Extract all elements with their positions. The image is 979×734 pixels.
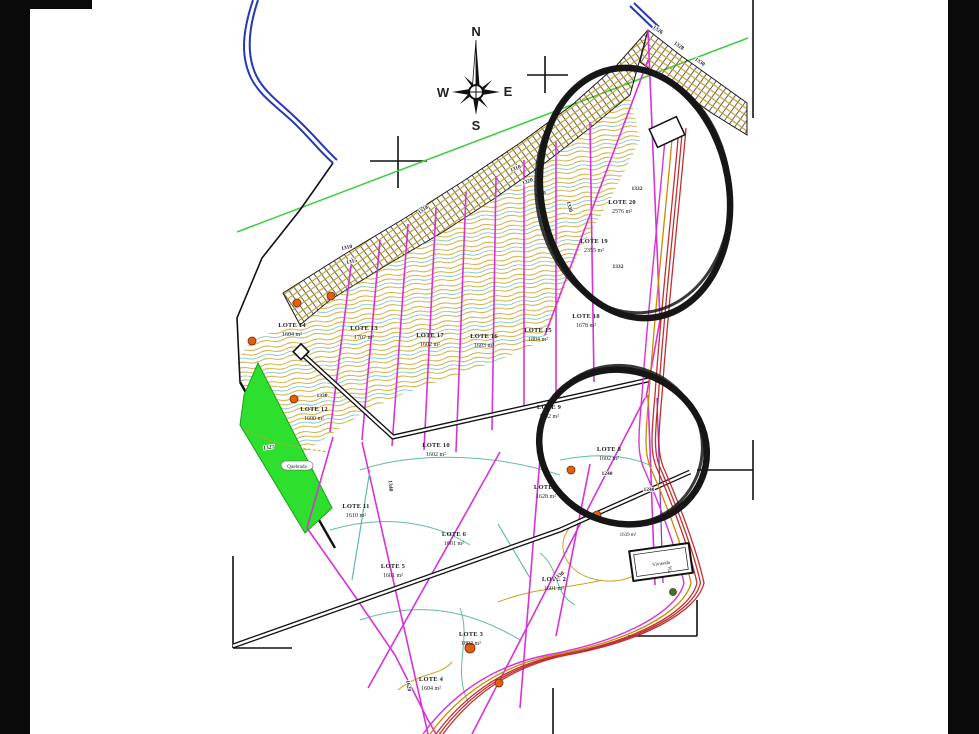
svg-text:LOTE 19: LOTE 19 <box>580 238 608 245</box>
svg-text:1601 m²: 1601 m² <box>444 541 464 547</box>
teal-divider <box>352 470 370 580</box>
svg-text:LOTE 8: LOTE 8 <box>597 446 622 453</box>
survey-point <box>248 337 256 345</box>
svg-text:1802 m²: 1802 m² <box>461 641 481 647</box>
svg-text:1601 m²: 1601 m² <box>544 586 564 592</box>
svg-text:1707 m²: 1707 m² <box>354 335 374 341</box>
river-segment-ne-1 <box>630 6 655 30</box>
svg-text:1610 m²: 1610 m² <box>346 513 366 519</box>
svg-text:1604 m²: 1604 m² <box>282 332 302 338</box>
svg-text:1804 m²: 1804 m² <box>528 337 548 343</box>
svg-text:1600 m²: 1600 m² <box>304 416 324 422</box>
svg-text:1602 m²: 1602 m² <box>420 342 440 348</box>
lot-label-3: LOTE 3 1802 m² <box>459 631 484 647</box>
svg-text:LOTE 4: LOTE 4 <box>419 676 444 683</box>
quebrada-label: Quebrada <box>287 465 307 470</box>
compass-e-label: E <box>504 84 513 99</box>
svg-text:LOTE 12: LOTE 12 <box>300 406 328 413</box>
svg-text:LOTE 18: LOTE 18 <box>572 313 600 320</box>
svg-text:LOTE 5: LOTE 5 <box>381 563 406 570</box>
lot-label-20: LOTE 20 2576 m² <box>608 199 636 215</box>
survey-point <box>495 679 503 687</box>
vivienda-box: Vivienda <box>629 543 693 581</box>
letterbox-left <box>0 0 30 734</box>
contour-band-northeast <box>640 30 747 135</box>
svg-text:1603 m²: 1603 m² <box>474 343 494 349</box>
compass-n-label: N <box>471 24 480 39</box>
survey-point <box>290 395 298 403</box>
river-line-2 <box>250 0 337 160</box>
lot-label-10: LOTE 10 1602 m² <box>422 442 450 458</box>
svg-text:2576 m²: 2576 m² <box>612 209 632 215</box>
boundary-southwest <box>307 528 436 734</box>
lot-label-8: LOTE 8 1602 m² <box>597 446 622 462</box>
survey-point <box>293 299 301 307</box>
contour-squiggle <box>360 457 560 475</box>
svg-text:LOTE 16: LOTE 16 <box>470 333 498 340</box>
vivienda-area-label: 1639 m² <box>620 532 637 538</box>
lot-divider-lower <box>556 464 590 636</box>
contour-label: 1332 <box>632 186 643 192</box>
svg-text:LOTE 6: LOTE 6 <box>442 531 467 538</box>
contour-label: 1330 <box>317 393 328 399</box>
letterbox-top-notch <box>30 0 92 9</box>
survey-point <box>567 466 575 474</box>
lot-label-6: LOTE 6 1601 m² <box>442 531 467 547</box>
lot-label-18: LOTE 18 1678 m² <box>572 313 600 329</box>
river-line-1 <box>244 0 333 163</box>
lot-label-19: LOTE 19 2355 m² <box>580 238 608 254</box>
svg-text:LOTE 15: LOTE 15 <box>524 327 552 334</box>
compass-w-label: W <box>437 85 450 100</box>
contour-label: 1332 <box>613 264 624 270</box>
svg-text:2355 m²: 2355 m² <box>584 248 604 254</box>
letterbox-right <box>948 0 979 734</box>
lot-label-11: LOTE 11 1610 m² <box>342 503 369 519</box>
svg-text:LOTE 20: LOTE 20 <box>608 199 636 206</box>
contour-label: 1340 <box>387 480 394 492</box>
survey-map: Quebrada <box>0 0 979 734</box>
lot-label-5: LOTE 5 1601 m² <box>381 563 406 579</box>
sketch-circle-south <box>516 345 731 550</box>
svg-text:1678 m²: 1678 m² <box>576 323 596 329</box>
sparse-contours <box>330 456 652 702</box>
survey-point <box>327 292 335 300</box>
svg-text:LOTE 14: LOTE 14 <box>278 322 306 329</box>
svg-text:1602 m²: 1602 m² <box>599 456 619 462</box>
contour-label: 1240 <box>644 487 655 493</box>
shed-box <box>649 117 685 148</box>
teal-dividers <box>352 470 530 580</box>
contour-squiggle <box>460 608 468 702</box>
svg-text:LOTE 13: LOTE 13 <box>350 325 378 332</box>
lot-label-4: LOTE 4 1604 m² <box>419 676 444 692</box>
river-segment-ne-2 <box>634 3 659 27</box>
map-viewer: Quebrada <box>0 0 979 734</box>
compass-rose: N S E W <box>437 24 513 133</box>
compass-s-label: S <box>472 118 481 133</box>
svg-text:1601 m²: 1601 m² <box>383 573 403 579</box>
svg-text:LOTE 11: LOTE 11 <box>342 503 369 510</box>
svg-text:1602 m²: 1602 m² <box>426 452 446 458</box>
svg-text:1628 m²: 1628 m² <box>536 494 556 500</box>
survey-point-green <box>670 589 677 596</box>
contour-squiggle <box>360 610 520 640</box>
via-label: Via <box>666 566 671 574</box>
contour-label: 1620 <box>404 680 412 692</box>
contour-label: 1240 <box>602 471 613 477</box>
svg-text:LOTE 17: LOTE 17 <box>416 332 444 339</box>
svg-text:LOTE 10: LOTE 10 <box>422 442 450 449</box>
svg-text:1604 m²: 1604 m² <box>421 686 441 692</box>
svg-text:LOTE 3: LOTE 3 <box>459 631 484 638</box>
compass-cardinals <box>452 40 500 115</box>
